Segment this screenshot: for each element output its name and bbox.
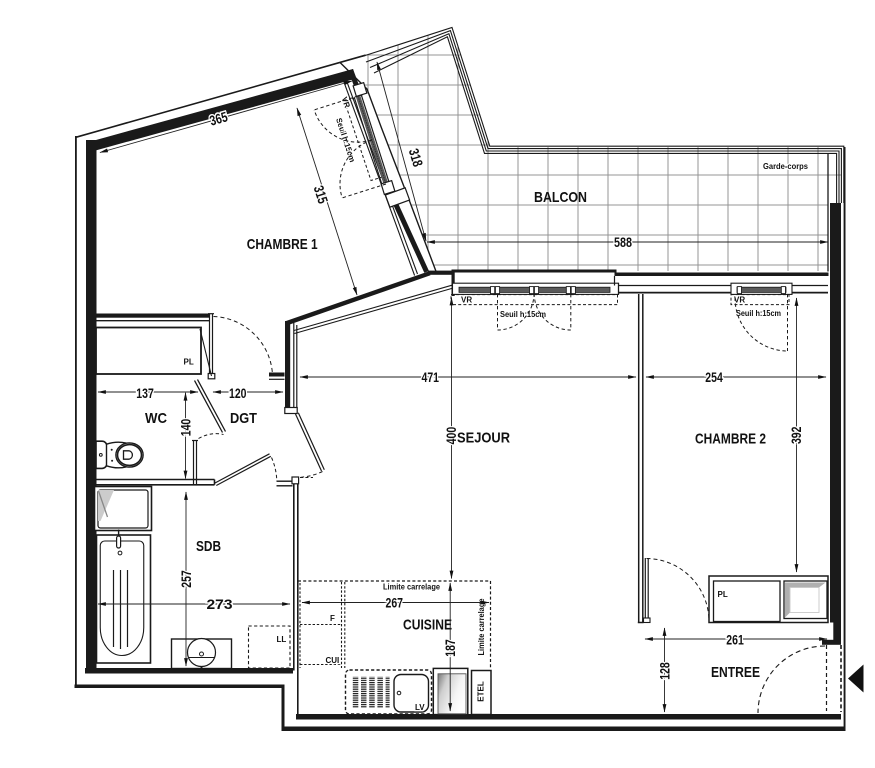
svg-text:Seuil h:15cm: Seuil h:15cm xyxy=(736,309,781,318)
svg-text:CUISINE: CUISINE xyxy=(403,617,452,634)
svg-text:WC: WC xyxy=(145,410,167,427)
svg-text:PL: PL xyxy=(718,590,728,599)
svg-text:187: 187 xyxy=(442,639,458,657)
svg-text:LL: LL xyxy=(277,635,287,644)
svg-text:471: 471 xyxy=(422,369,440,385)
svg-text:273: 273 xyxy=(207,596,233,612)
svg-text:Limite carrelage: Limite carrelage xyxy=(477,598,486,656)
svg-text:BALCON: BALCON xyxy=(534,189,587,206)
svg-text:VR: VR xyxy=(734,296,745,305)
svg-text:254: 254 xyxy=(705,369,723,385)
svg-text:CHAMBRE 1: CHAMBRE 1 xyxy=(247,236,318,253)
svg-text:128: 128 xyxy=(657,662,673,680)
svg-text:VR: VR xyxy=(461,296,472,305)
svg-text:400: 400 xyxy=(443,427,459,445)
svg-text:SDB: SDB xyxy=(196,538,221,555)
svg-text:140: 140 xyxy=(178,419,194,437)
svg-text:ETEL: ETEL xyxy=(477,681,486,702)
svg-text:F: F xyxy=(330,614,335,623)
svg-text:261: 261 xyxy=(726,631,744,647)
svg-text:Limite carrelage: Limite carrelage xyxy=(383,583,441,592)
svg-text:392: 392 xyxy=(788,426,804,444)
svg-text:137: 137 xyxy=(136,385,154,401)
svg-text:588: 588 xyxy=(614,234,632,250)
svg-text:SEJOUR: SEJOUR xyxy=(457,430,510,447)
svg-text:120: 120 xyxy=(229,385,247,401)
svg-text:CUI: CUI xyxy=(326,656,340,665)
svg-text:DGT: DGT xyxy=(230,410,257,427)
svg-text:257: 257 xyxy=(178,570,194,588)
svg-text:LV: LV xyxy=(415,703,425,712)
svg-text:ENTREE: ENTREE xyxy=(711,664,760,681)
svg-text:Garde-corps: Garde-corps xyxy=(763,162,809,171)
svg-text:PL: PL xyxy=(184,358,194,367)
svg-text:CHAMBRE 2: CHAMBRE 2 xyxy=(695,431,766,448)
svg-text:267: 267 xyxy=(386,595,404,611)
